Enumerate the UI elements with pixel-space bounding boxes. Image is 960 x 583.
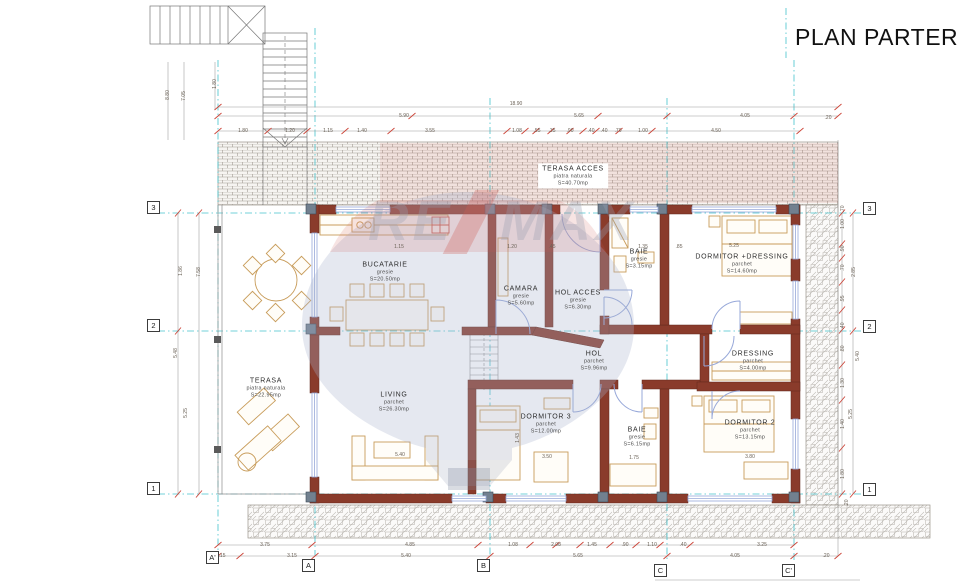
room-label-hol: HOLparchetS=9.96mp	[580, 349, 607, 372]
dimension-label: 5.65	[573, 553, 583, 559]
dimension-label: .95	[840, 296, 846, 303]
dimension-label: 3.50	[542, 454, 552, 460]
room-name: TERASA ACCES	[542, 164, 604, 173]
dimension-label: 1.20	[285, 128, 295, 134]
dimension-label: 8.80	[165, 90, 171, 100]
dimension-label: 5.25	[848, 409, 854, 419]
room-area: S=9.96mp	[580, 366, 607, 373]
floor-plan-drawing	[0, 0, 960, 583]
room-name: TERASA	[247, 376, 286, 385]
dimension-label: .40	[588, 128, 595, 134]
dimension-label: 1.15	[323, 128, 333, 134]
room-name: CAMARA	[504, 284, 538, 293]
dimension-label: 5.40	[855, 351, 861, 361]
dimension-label: 4.05	[730, 553, 740, 559]
dimension-label: 7.58	[196, 267, 202, 277]
room-label-dormitor-2: DORMITOR 2parchetS=13.15mp	[725, 418, 776, 441]
room-finish: parchet	[379, 400, 409, 407]
dimension-label: 1.43	[515, 433, 521, 443]
dimension-label: 5.48	[173, 348, 179, 358]
grid-marker-row-3: 3	[863, 202, 876, 215]
room-area: S=5.60mp	[504, 301, 538, 308]
room-label-dormitor-dressing: DORMITOR +DRESSINGparchetS=14.60mp	[695, 252, 788, 275]
remax-watermark-text-right: MAX	[500, 188, 636, 253]
room-name: LIVING	[379, 390, 409, 399]
dimension-label: 1.20	[507, 244, 517, 250]
dimension-label: 1.08	[508, 542, 518, 548]
room-area: S=6.15mp	[623, 442, 650, 449]
room-finish: parchet	[521, 422, 572, 429]
room-label-terasa: TERASApiatra naturalaS=22.95mp	[247, 376, 286, 399]
room-finish: gresie	[555, 298, 601, 305]
room-label-dressing: DRESSINGparchetS=4.00mp	[732, 349, 774, 372]
dimension-label: 7.05	[181, 91, 187, 101]
dimension-label: 1.45	[587, 542, 597, 548]
dimension-label: .85	[676, 244, 683, 250]
dimension-label: 1.00	[638, 128, 648, 134]
room-name: DRESSING	[732, 349, 774, 358]
dimension-label: 4.85	[405, 542, 415, 548]
dimension-label: 1.80	[238, 128, 248, 134]
dimension-label: 2.08	[551, 542, 561, 548]
dimension-label: .20	[844, 500, 850, 507]
room-label-camara: CAMARAgresieS=5.60mp	[504, 284, 538, 307]
room-name: BUCATARIE	[362, 260, 407, 269]
room-area: S=6.30mp	[555, 305, 601, 312]
dimension-label: 5.40	[401, 553, 411, 559]
room-name: DORMITOR +DRESSING	[695, 252, 788, 261]
room-finish: gresie	[504, 294, 538, 301]
room-finish: piatra naturala	[542, 174, 604, 181]
room-name: DORMITOR 3	[521, 412, 572, 421]
dimension-label: .90	[567, 128, 574, 134]
plan-title: PLAN PARTER	[795, 24, 958, 51]
room-label-hol-acces: HOL ACCESgresieS=6.30mp	[555, 288, 601, 311]
room-finish: gresie	[623, 435, 650, 442]
dimension-label: 5.25	[729, 243, 739, 249]
room-area: S=20.50mp	[362, 277, 407, 284]
dimension-label: 3.15	[287, 553, 297, 559]
dimension-label: 1.30	[840, 378, 846, 388]
room-area: S=4.00mp	[732, 366, 774, 373]
dimension-label: .80	[840, 346, 846, 353]
room-area: S=14.60mp	[695, 269, 788, 276]
room-finish: parchet	[732, 359, 774, 366]
room-finish: gresie	[362, 270, 407, 277]
grid-marker-row-1: 1	[863, 483, 876, 496]
room-area: S=26.30mp	[379, 407, 409, 414]
dimension-label: .55	[534, 128, 541, 134]
dimension-label: 1.15	[394, 244, 404, 250]
room-name: BAIE	[623, 425, 650, 434]
dimension-label: 1.40	[357, 128, 367, 134]
room-label-baie: BAIEgresieS=6.15mp	[623, 425, 650, 448]
dimension-label: .15	[219, 553, 226, 559]
grid-marker-col-a: A'	[206, 551, 219, 564]
room-label-living: LIVINGparchetS=26.30mp	[379, 390, 409, 413]
grid-marker-row-2: 2	[147, 319, 160, 332]
floor-plan-canvas: RE MAX PLAN PARTER TERASA ACCESpiatra na…	[0, 0, 960, 583]
dimension-label: .40	[680, 542, 687, 548]
dimension-label: 5.65	[574, 113, 584, 119]
grid-marker-col-a: A	[302, 559, 315, 572]
dimension-label: 3.75	[260, 542, 270, 548]
dimension-label: .90	[840, 246, 846, 253]
room-area: S=13.15mp	[725, 435, 776, 442]
grid-marker-col-c: C	[654, 564, 667, 577]
dimension-label: .70	[840, 206, 846, 213]
dimension-label: 3.25	[757, 542, 767, 548]
dimension-label: 1.40	[840, 419, 846, 429]
grid-marker-col-c: C'	[782, 564, 795, 577]
dimension-label: 4.05	[740, 113, 750, 119]
room-name: HOL ACCES	[555, 288, 601, 297]
dimension-label: 18.90	[510, 101, 523, 107]
dimension-label: .70	[840, 265, 846, 272]
room-label-bucatarie: BUCATARIEgresieS=20.50mp	[362, 260, 407, 283]
dimension-label: 3.55	[425, 128, 435, 134]
dimension-label: 1.80	[212, 79, 218, 89]
dimension-label: .70	[615, 128, 622, 134]
dimension-label: .35	[549, 128, 556, 134]
room-name: DORMITOR 2	[725, 418, 776, 427]
dimension-label: 1.10	[647, 542, 657, 548]
dimension-label: .20	[823, 553, 830, 559]
dimension-label: 1.75	[629, 455, 639, 461]
dimension-label: 1.00	[840, 219, 846, 229]
room-area: S=40.70mp	[542, 181, 604, 188]
dimension-label: 5.90	[399, 113, 409, 119]
grid-marker-col-b: B	[477, 559, 490, 572]
room-name: HOL	[580, 349, 607, 358]
grid-marker-row-2: 2	[863, 320, 876, 333]
dimension-label: 4.50	[711, 128, 721, 134]
dimension-label: .45	[549, 244, 556, 250]
dimension-label: 5.25	[183, 408, 189, 418]
room-finish: parchet	[725, 428, 776, 435]
dimension-label: 3.80	[745, 454, 755, 460]
room-area: S=3.15mp	[625, 264, 652, 271]
room-label-dormitor-3: DORMITOR 3parchetS=12.00mp	[521, 412, 572, 435]
grid-marker-row-1: 1	[147, 482, 160, 495]
remax-watermark-text-left: RE	[368, 188, 454, 253]
room-area: S=22.95mp	[247, 393, 286, 400]
dimension-label: 2.85	[851, 267, 857, 277]
grid-marker-row-3: 3	[147, 201, 160, 214]
room-area: S=12.00mp	[521, 429, 572, 436]
room-finish: parchet	[695, 262, 788, 269]
dimension-label: 1.35	[638, 244, 648, 250]
room-label-terasa-acces: TERASA ACCESpiatra naturalaS=40.70mp	[538, 163, 608, 188]
dimension-label: .40	[601, 128, 608, 134]
dimension-label: 1.08	[512, 128, 522, 134]
room-label-baie: BAIEgresieS=3.15mp	[625, 247, 652, 270]
dimension-label: .20	[825, 115, 832, 121]
dimension-label: 1.86	[178, 266, 184, 276]
room-finish: piatra naturala	[247, 386, 286, 393]
dimension-label: 1.80	[840, 469, 846, 479]
dimension-label: .90	[622, 542, 629, 548]
room-finish: parchet	[580, 359, 607, 366]
dimension-label: .40	[840, 323, 846, 330]
dimension-label: 5.40	[395, 452, 405, 458]
room-finish: gresie	[625, 257, 652, 264]
